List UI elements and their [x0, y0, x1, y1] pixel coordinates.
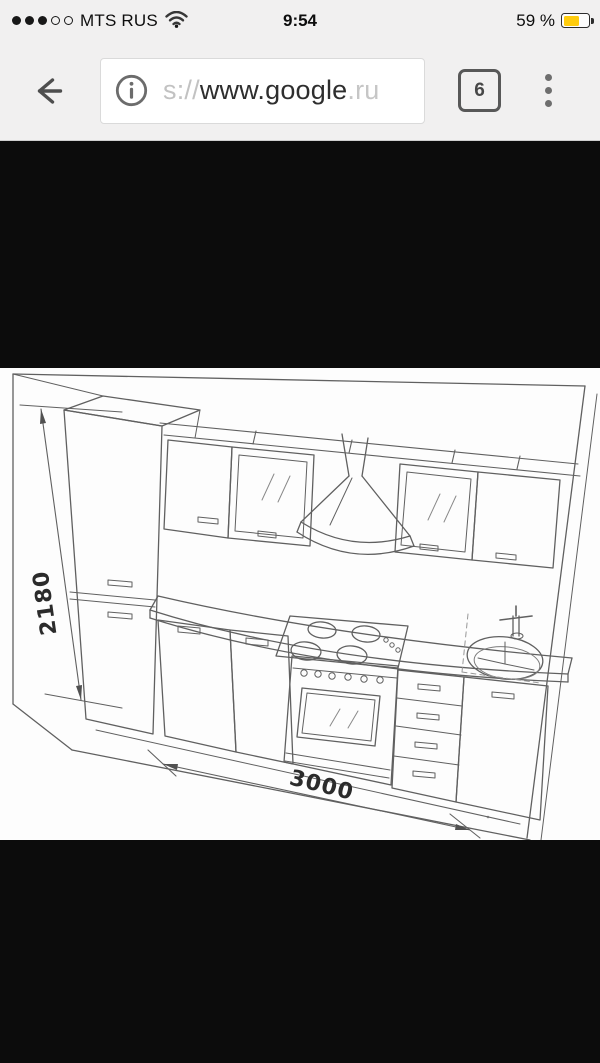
- wifi-icon: [165, 11, 188, 33]
- letterbox-bottom: [0, 840, 600, 1063]
- browser-toolbar: s://www.google.ru 6: [0, 41, 600, 141]
- status-bar: MTS RUS 9:54 59 %: [0, 0, 600, 41]
- tall-cabinet: [64, 396, 200, 734]
- clock: 9:54: [283, 11, 317, 31]
- browser-viewport[interactable]: 2180 3000: [0, 368, 600, 840]
- wall-cabinets: [164, 440, 560, 568]
- back-button[interactable]: [30, 71, 70, 111]
- letterbox-top: [0, 141, 600, 368]
- tab-count: 6: [474, 80, 485, 102]
- phone-screen: MTS RUS 9:54 59 %: [0, 0, 600, 1063]
- cabinet-top-band: [160, 423, 580, 476]
- back-arrow-icon: [31, 72, 69, 110]
- faucet: [500, 606, 532, 639]
- width-dimension-label: 3000: [287, 766, 356, 806]
- page-info-icon[interactable]: [114, 73, 149, 108]
- sink-base-cabinet: [456, 677, 548, 820]
- overflow-menu-button[interactable]: [545, 74, 552, 107]
- battery-icon: [561, 13, 590, 28]
- countertop: [150, 596, 572, 682]
- url-tld: .ru: [347, 75, 379, 105]
- drawer-unit: [392, 670, 464, 802]
- carrier-label: MTS RUS: [80, 11, 158, 31]
- kitchen-drawing: 2180 3000: [0, 368, 600, 840]
- battery-fill: [564, 16, 580, 26]
- url-bar[interactable]: s://www.google.ru: [100, 58, 425, 124]
- height-dimension: [20, 405, 122, 708]
- height-dimension-label: 2180: [29, 569, 63, 637]
- kebab-menu-icon: [545, 74, 552, 81]
- url-scheme: s://: [163, 75, 200, 105]
- url-text: s://www.google.ru: [163, 75, 380, 106]
- cell-signal-icon: [12, 16, 73, 25]
- oven: [284, 656, 398, 785]
- battery-percent-label: 59 %: [516, 11, 555, 31]
- url-host: www.google: [200, 75, 348, 105]
- tab-switcher-button[interactable]: 6: [458, 69, 501, 112]
